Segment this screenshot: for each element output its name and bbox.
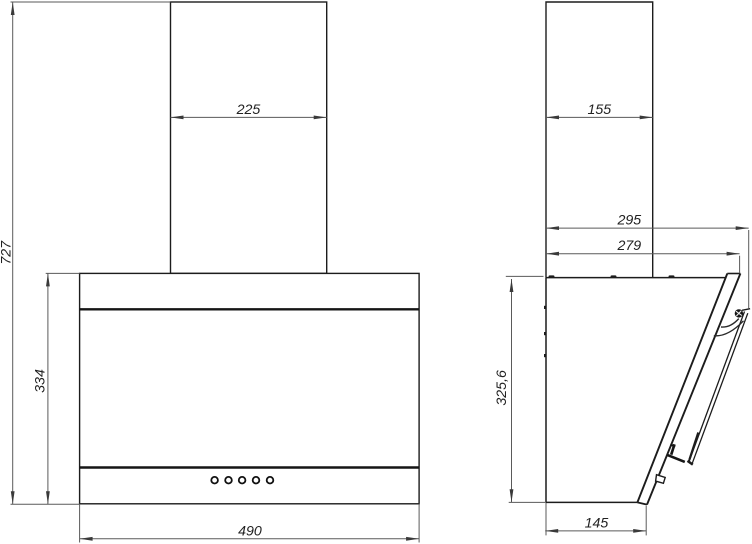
svg-text:325,6: 325,6	[494, 370, 510, 406]
svg-text:155: 155	[587, 102, 611, 118]
svg-text:334: 334	[32, 369, 48, 393]
svg-text:145: 145	[585, 515, 609, 531]
svg-text:295: 295	[616, 213, 641, 229]
svg-text:225: 225	[236, 102, 261, 118]
svg-text:727: 727	[0, 240, 14, 265]
svg-text:490: 490	[238, 523, 262, 539]
svg-text:279: 279	[616, 238, 641, 254]
